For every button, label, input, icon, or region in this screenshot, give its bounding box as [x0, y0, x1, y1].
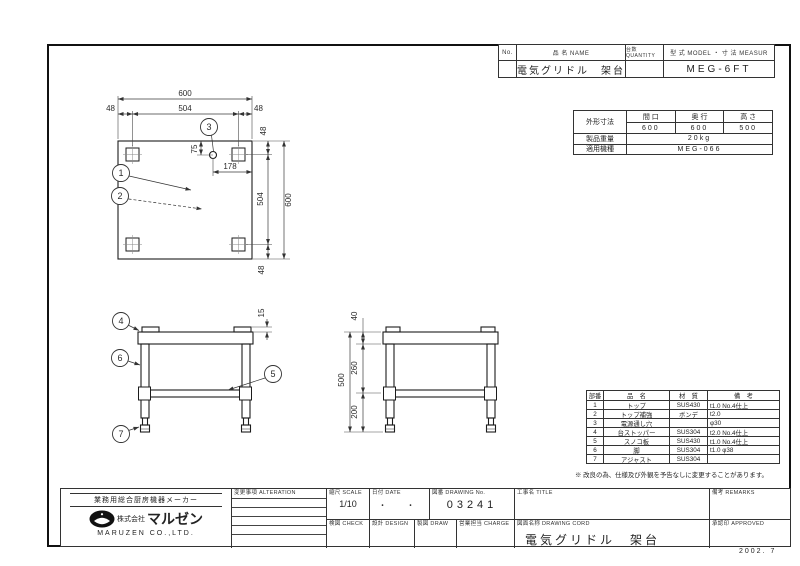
part-no: 5 [587, 436, 603, 445]
applicable-model-value: MEG-066 [626, 144, 772, 155]
balloon-7: 7 [113, 426, 130, 443]
check-cell: 検図 CHECK [326, 519, 369, 548]
drawing-views: 600 48 504 48 48 504 48 600 75 178 1 2 [0, 0, 800, 566]
parts-remarks-header: 備 考 [707, 391, 779, 400]
part-material: SUS304 [669, 445, 707, 454]
drawing-sheet: 600 48 504 48 48 504 48 600 75 178 1 2 [0, 0, 800, 566]
svg-text:7: 7 [118, 429, 123, 439]
dim-mid-height: 260 [350, 361, 359, 375]
alteration-row [232, 516, 326, 525]
revision-note: ※ 改良の為、仕様及び外観を予告なしに変更することがあります。 [575, 470, 785, 479]
dim-top-offset: 48 [259, 126, 268, 135]
outer-dims-label: 外形寸法 [574, 111, 626, 133]
dim-left-offset: 48 [106, 104, 115, 113]
part-remarks: φ30 [707, 418, 779, 427]
charge-cell: 営業担当 CHARGE [456, 519, 514, 548]
dim-inner: 504 [178, 104, 192, 113]
title-block: 業務用総合厨房機器メーカー 株式会社 マルゼン MARUZEN CO.,LTD.… [60, 488, 791, 547]
alteration-row [232, 525, 326, 534]
company-prefix: 株式会社 [117, 514, 145, 524]
svg-text:5: 5 [270, 369, 275, 379]
svg-text:3: 3 [206, 122, 211, 132]
width-label: 間 口 [626, 111, 675, 122]
parts-name-header: 品 名 [603, 391, 669, 400]
part-material: ボンデ [669, 409, 707, 418]
dim-depth: 600 [284, 193, 293, 207]
part-name: 台ストッパー [603, 427, 669, 436]
parts-material-header: 材 質 [669, 391, 707, 400]
side-view: 500 40 260 200 [337, 311, 498, 432]
remarks-cell: 備考 REMARKS [709, 489, 791, 519]
dim-lower-height: 200 [350, 405, 359, 419]
name-model-table: No. 品 名 NAME 台数 QUANTITY 型 式 MODEL ・ 寸 法… [498, 44, 775, 78]
name-header: 品 名 NAME [516, 45, 625, 60]
date-value: ・ ・ [370, 500, 429, 511]
svg-text:2: 2 [117, 191, 122, 201]
part-no: 7 [587, 454, 603, 463]
drawing-no-cell: 図番 DRAWING No. 03241 [429, 489, 514, 519]
part-no: 3 [587, 418, 603, 427]
part-material: SUS304 [669, 454, 707, 463]
part-material: SUS430 [669, 436, 707, 445]
height-value: 500 [723, 122, 772, 133]
scale-label: 縮尺 SCALE [327, 489, 369, 498]
svg-text:6: 6 [117, 353, 122, 363]
project-title-label: 工事名 TITLE [515, 489, 709, 498]
part-no: 4 [587, 427, 603, 436]
company-box: 業務用総合厨房機器メーカー 株式会社 マルゼン MARUZEN CO.,LTD. [61, 489, 231, 548]
balloon-3: 3 [201, 119, 218, 136]
date-cell: 日付 DATE ・ ・ [369, 489, 429, 519]
part-material: SUS430 [669, 400, 707, 409]
dim-total-height: 500 [337, 373, 346, 387]
part-name: 電源通し穴 [603, 418, 669, 427]
part-remarks: t1.0 φ38 [707, 445, 779, 454]
part-name: トップ補強 [603, 409, 669, 418]
width-value: 600 [626, 122, 675, 133]
dim-stopper-height: 15 [257, 308, 266, 317]
drawing-no-value: 03241 [430, 499, 514, 511]
parts-table: 部番 品 名 材 質 備 考 1 トップ SUS430 t1.0 No.4仕上 … [586, 390, 780, 464]
drawing-no-label: 図番 DRAWING No. [430, 489, 514, 498]
balloon-2: 2 [112, 188, 129, 205]
dim-frame-height: 40 [350, 311, 359, 320]
part-remarks: t1.0 No.4仕上 [707, 436, 779, 445]
dim-right-offset: 48 [254, 104, 263, 113]
product-name: 電気グリドル 架台 [516, 60, 625, 77]
part-name: アジャスト [603, 454, 669, 463]
remarks-label: 備考 REMARKS [710, 489, 791, 498]
balloon-4: 4 [113, 313, 130, 330]
part-material [669, 418, 707, 427]
part-name: 脚 [603, 445, 669, 454]
plan-view: 600 48 504 48 48 504 48 600 75 178 1 2 [106, 89, 293, 274]
side-dimensions: 500 40 260 200 [337, 311, 363, 432]
balloon-5: 5 [265, 366, 282, 383]
no-value [499, 60, 516, 77]
height-label: 高 さ [723, 111, 772, 122]
alteration-box: 変更事項 ALTERATION [231, 489, 326, 548]
drawing-name-label: 図面名称 DRAWING CORD [515, 520, 709, 529]
charge-label: 営業担当 CHARGE [457, 520, 514, 529]
date-label: 日付 DATE [370, 489, 429, 498]
qty-header: 台数 QUANTITY [625, 45, 663, 60]
weight-label: 製品重量 [574, 133, 626, 144]
drawing-name-value: 電気グリドル 架台 [515, 531, 709, 548]
dim-hole-x: 178 [223, 162, 237, 171]
applicable-model-label: 適用機種 [574, 144, 626, 155]
spec-table: 外形寸法 間 口 奥 行 高 さ 600 600 500 製品重量 20kg 適… [573, 110, 773, 155]
company-tagline: 業務用総合厨房機器メーカー [70, 493, 222, 507]
part-remarks: t2.0 [707, 409, 779, 418]
dim-width: 600 [178, 89, 192, 98]
parts-no-header: 部番 [587, 391, 603, 400]
alteration-row [232, 534, 326, 543]
approved-cell: 承認印 APPROVED [709, 519, 791, 548]
front-view: 15 4 6 5 7 [112, 308, 282, 442]
qty-value [625, 60, 663, 77]
drawing-name-cell: 図面名称 DRAWING CORD 電気グリドル 架台 [514, 519, 709, 548]
balloon-6: 6 [112, 350, 129, 367]
design-label: 設計 DESIGN [370, 520, 414, 529]
design-cell: 設計 DESIGN [369, 519, 414, 548]
dim-bottom-offset: 48 [257, 265, 266, 274]
balloon-1: 1 [113, 165, 130, 182]
scale-cell: 縮尺 SCALE 1/10 [326, 489, 369, 519]
depth-label: 奥 行 [675, 111, 724, 122]
approved-label: 承認印 APPROVED [710, 520, 791, 529]
part-no: 1 [587, 400, 603, 409]
scale-value: 1/10 [327, 499, 369, 509]
part-name: スノコ板 [603, 436, 669, 445]
weight-value: 20kg [626, 133, 772, 144]
company-logotype: マルゼン [147, 509, 203, 529]
check-label: 検図 CHECK [327, 520, 369, 529]
model-header: 型 式 MODEL ・ 寸 法 MEASUR [663, 45, 774, 60]
part-material: SUS304 [669, 427, 707, 436]
maruzen-logo [89, 510, 115, 528]
svg-text:1: 1 [118, 168, 123, 178]
depth-value: 600 [675, 122, 724, 133]
project-title-cell: 工事名 TITLE [514, 489, 709, 519]
model-value: MEG-6FT [663, 60, 774, 77]
dim-inner-v: 504 [256, 192, 265, 206]
part-name: トップ [603, 400, 669, 409]
part-remarks: t1.0 No.4仕上 [707, 400, 779, 409]
draw-label: 製図 DRAW [415, 520, 456, 529]
alteration-row [232, 507, 326, 516]
part-remarks [707, 454, 779, 463]
alteration-row [232, 498, 326, 507]
dim-hole-y: 75 [190, 144, 199, 153]
alteration-label: 変更事項 ALTERATION [232, 489, 326, 498]
company-name-en: MARUZEN CO.,LTD. [61, 530, 231, 537]
draw-cell: 製図 DRAW [414, 519, 456, 548]
no-header: No. [499, 45, 516, 60]
svg-text:4: 4 [118, 316, 123, 326]
date-stamp: 2002. 7 [739, 548, 776, 555]
part-remarks: t2.0 No.4仕上 [707, 427, 779, 436]
part-no: 2 [587, 409, 603, 418]
part-no: 6 [587, 445, 603, 454]
